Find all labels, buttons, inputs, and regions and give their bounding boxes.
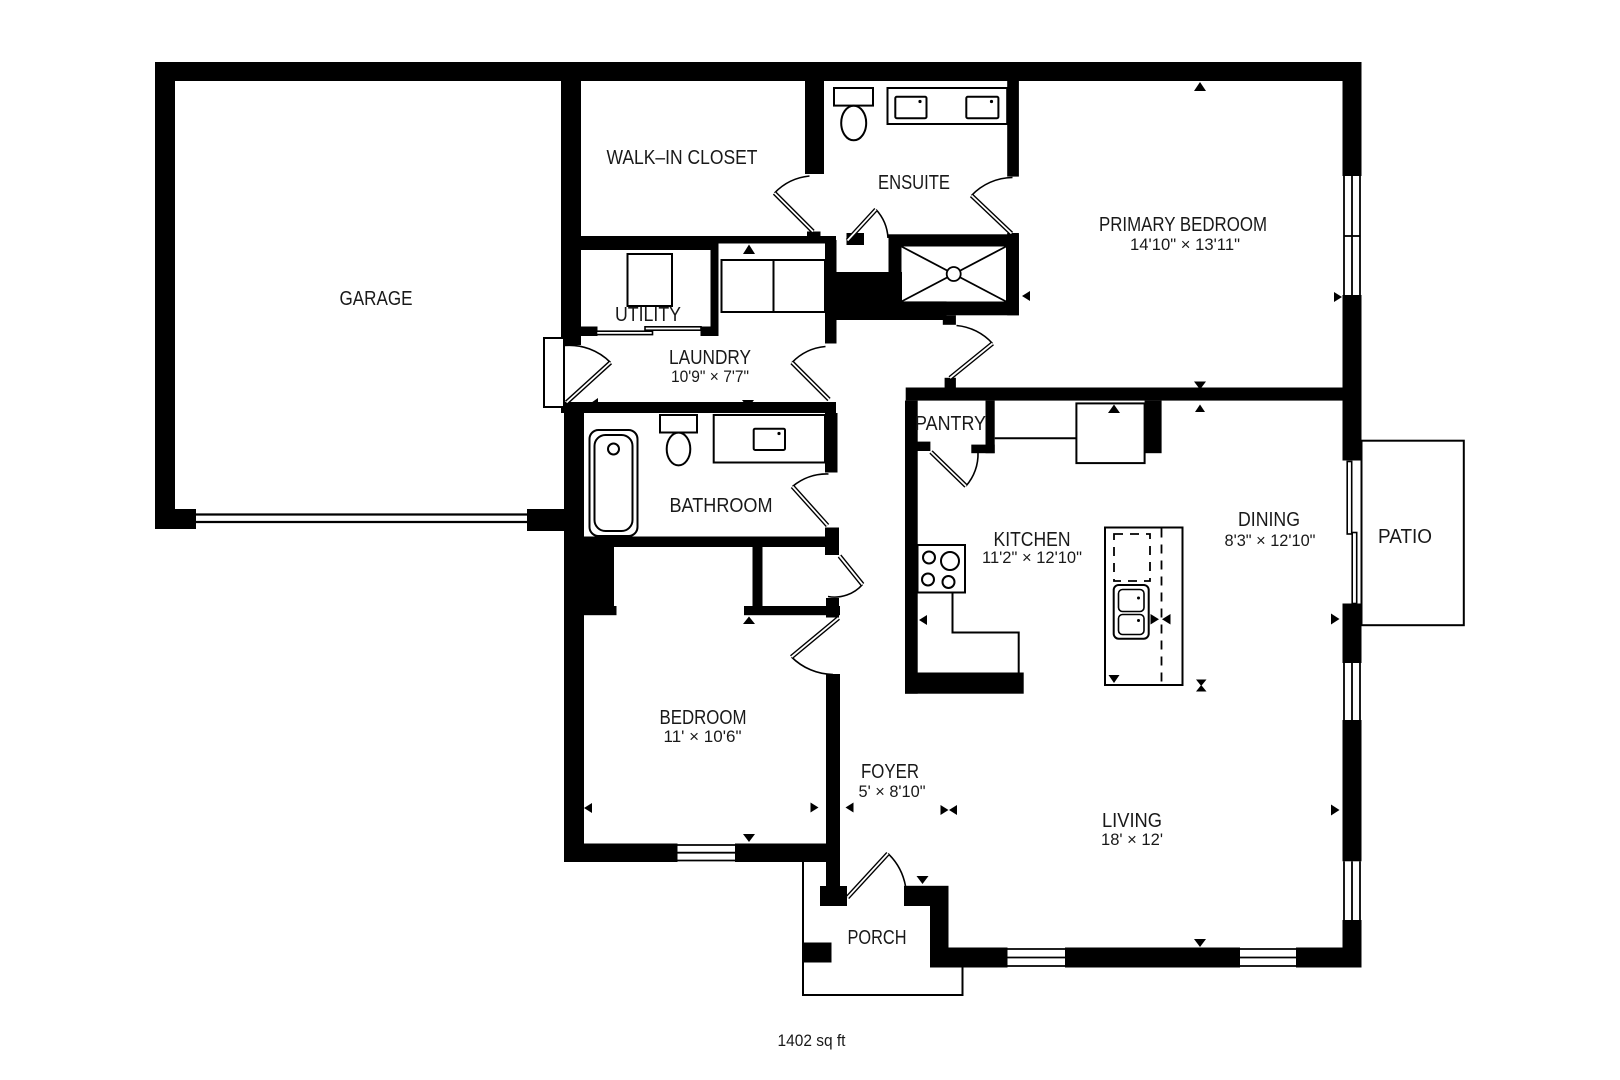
svg-text:FOYER: FOYER — [861, 761, 919, 783]
svg-text:11'2" × 12'10": 11'2" × 12'10" — [982, 549, 1082, 567]
svg-text:PORCH: PORCH — [848, 927, 907, 949]
svg-text:PRIMARY BEDROOM: PRIMARY BEDROOM — [1099, 214, 1267, 236]
svg-text:LAUNDRY: LAUNDRY — [669, 347, 751, 369]
svg-text:DINING: DINING — [1238, 509, 1300, 531]
svg-text:LIVING: LIVING — [1102, 810, 1162, 832]
svg-text:GARAGE: GARAGE — [340, 288, 413, 310]
svg-text:BEDROOM: BEDROOM — [660, 707, 747, 729]
svg-text:ENSUITE: ENSUITE — [878, 172, 950, 194]
svg-text:BATHROOM: BATHROOM — [670, 495, 773, 517]
svg-text:WALK–IN CLOSET: WALK–IN CLOSET — [607, 147, 758, 169]
svg-text:11' × 10'6": 11' × 10'6" — [664, 728, 742, 746]
svg-text:8'3" × 12'10": 8'3" × 12'10" — [1225, 532, 1316, 550]
svg-text:UTILITY: UTILITY — [615, 304, 681, 326]
svg-text:PATIO: PATIO — [1378, 526, 1432, 548]
svg-text:1402 sq ft: 1402 sq ft — [778, 1032, 846, 1050]
svg-text:PANTRY: PANTRY — [915, 413, 986, 435]
svg-text:18' × 12': 18' × 12' — [1101, 831, 1163, 849]
svg-text:5' × 8'10": 5' × 8'10" — [859, 783, 926, 801]
svg-text:10'9" × 7'7": 10'9" × 7'7" — [671, 368, 749, 386]
svg-text:KITCHEN: KITCHEN — [994, 529, 1071, 551]
svg-text:14'10" × 13'11": 14'10" × 13'11" — [1130, 236, 1240, 254]
